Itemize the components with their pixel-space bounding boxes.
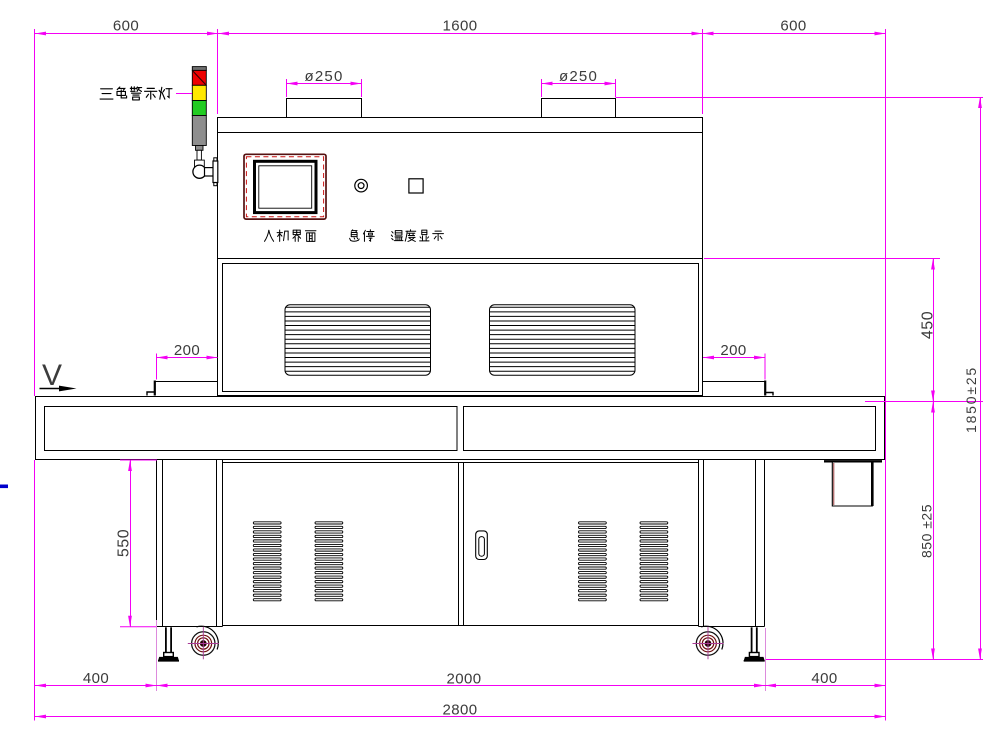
svg-text:1600: 1600: [443, 18, 478, 35]
svg-text:ø250: ø250: [559, 68, 598, 85]
svg-text:2800: 2800: [443, 702, 478, 719]
svg-text:200: 200: [720, 342, 746, 359]
svg-text:450: 450: [920, 311, 937, 339]
svg-text:2000: 2000: [447, 671, 482, 688]
svg-text:550: 550: [116, 529, 133, 557]
svg-text:ø250: ø250: [305, 68, 344, 85]
svg-text:400: 400: [811, 670, 837, 687]
svg-text:400: 400: [83, 670, 109, 687]
svg-text:1850±25: 1850±25: [963, 366, 979, 433]
svg-text:850 ±25: 850 ±25: [919, 504, 935, 558]
svg-text:600: 600: [780, 18, 806, 35]
svg-text:600: 600: [113, 18, 139, 35]
svg-text:200: 200: [174, 342, 200, 359]
